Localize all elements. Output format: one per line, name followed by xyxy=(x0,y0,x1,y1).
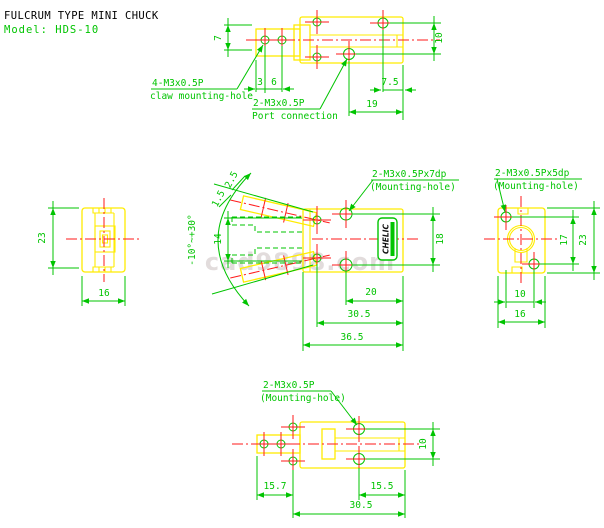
bottom-view: 10 15.7 15.5 30.5 2-M3x0.5P (Mounting-ho… xyxy=(232,380,440,518)
dim-text: 16 xyxy=(514,309,526,320)
dim-text: 6 xyxy=(271,77,277,88)
dim-text: 10 xyxy=(418,438,429,450)
dim-text: 7.5 xyxy=(381,77,398,88)
callout-text: 2-M3x0.5P xyxy=(253,98,305,109)
title-block: FULCRUM TYPE MINI CHUCK Model: HDS-10 xyxy=(4,10,159,36)
chelic-logo-label: CHELIC xyxy=(378,218,397,260)
right-holes xyxy=(501,212,539,269)
dim-text: 2.5 xyxy=(223,170,241,190)
drawing-title: FULCRUM TYPE MINI CHUCK xyxy=(4,10,159,22)
callout-text: (Mounting-hole) xyxy=(493,181,579,192)
logo-stripe xyxy=(391,222,395,256)
right-side-view: 17 23 10 16 2-M3x0.5Px5dp (Mounting-hole… xyxy=(484,168,600,328)
upper-claw-rotated xyxy=(228,190,332,232)
left-side-view: 23 16 xyxy=(37,198,140,306)
top-view: 7 10 3 6 7.5 19 4-M3x0.5P claw mounting-… xyxy=(150,10,445,122)
callout-bottom-mounting-hole: 2-M3x0.5P (Mounting-hole) xyxy=(260,380,357,425)
claw-axis-centerline xyxy=(230,200,329,223)
dim-text: -10°~+30° xyxy=(187,214,198,265)
top-cap-outline xyxy=(294,25,310,60)
leader-line xyxy=(320,59,347,109)
callout-text: 4-M3x0.5P xyxy=(152,78,204,89)
dim-text: 10 xyxy=(514,289,526,300)
dim-text: 19 xyxy=(366,99,378,110)
callout-port-connection: 2-M3x0.5P Port connection xyxy=(252,59,347,122)
dim-text: 23 xyxy=(37,232,48,243)
drawing-model: Model: HDS-10 xyxy=(4,24,99,36)
callout-text: Port connection xyxy=(252,111,338,122)
callout-text: 2-M3x0.5Px7dp xyxy=(372,169,447,180)
callout-text: claw mounting-hole xyxy=(150,91,253,102)
callout-text: 2-M3x0.5P xyxy=(263,380,315,391)
callout-front-mounting-hole: 2-M3x0.5Px7dp (Mounting-hole) xyxy=(349,169,459,211)
dim-text: 30.5 xyxy=(350,500,373,511)
claw-outline xyxy=(240,196,316,227)
dim-text: 18 xyxy=(435,233,446,245)
callout-text: 2-M3x0.5Px5dp xyxy=(495,168,570,179)
dim-text: 15.5 xyxy=(371,481,394,492)
dim-text: 3 xyxy=(257,77,263,88)
dim-text: 14 xyxy=(213,233,224,245)
right-notch-lines xyxy=(512,208,528,273)
dim-text: 17 xyxy=(559,234,570,245)
dim-text: 30.5 xyxy=(348,309,371,320)
dim-text: 10 xyxy=(434,32,445,44)
top-slot-lines xyxy=(310,35,403,47)
dim-text: 7 xyxy=(213,35,224,41)
drawing-svg: cad9898.com FULCRUM TYPE MINI CHUCK Mode… xyxy=(0,0,604,528)
dim-text: 16 xyxy=(98,288,110,299)
dim-text: 1.5 xyxy=(210,189,228,209)
leader-line xyxy=(349,180,373,211)
callout-text: (Mounting-hole) xyxy=(260,393,346,404)
dim-text: 36.5 xyxy=(341,332,364,343)
logo-brand-text: CHELIC xyxy=(382,224,391,254)
dim-text: 20 xyxy=(365,287,377,298)
callout-text: (Mounting-hole) xyxy=(370,182,456,193)
dim-text: 23 xyxy=(578,234,589,245)
callout-claw-mounting-hole: 4-M3x0.5P claw mounting-hole xyxy=(150,45,263,102)
cad-drawing-sheet: cad9898.com FULCRUM TYPE MINI CHUCK Mode… xyxy=(0,0,604,528)
bottom-extension-lines xyxy=(257,422,440,518)
dim-text: 15.7 xyxy=(264,481,287,492)
